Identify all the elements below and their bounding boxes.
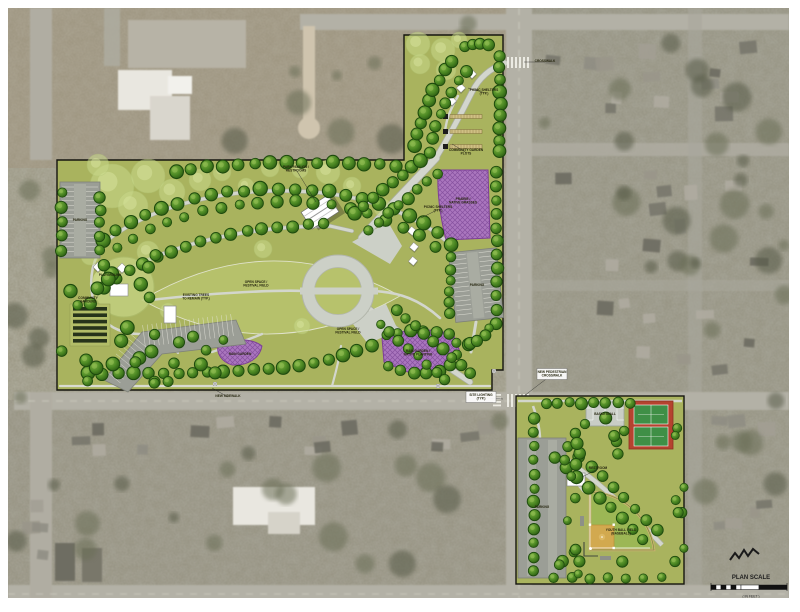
tree bbox=[529, 510, 540, 521]
tree bbox=[130, 357, 141, 368]
tree bbox=[127, 366, 140, 379]
tree bbox=[597, 471, 608, 482]
tree bbox=[149, 329, 159, 339]
tree bbox=[216, 160, 229, 173]
tree bbox=[582, 482, 595, 495]
aerial-tree bbox=[319, 522, 348, 551]
plan-label: RAIN GARDEN /NATIVE PLANTING bbox=[404, 349, 433, 357]
tree bbox=[445, 265, 456, 276]
aerial-tree bbox=[286, 90, 311, 115]
light-post-dot bbox=[437, 385, 438, 386]
tree bbox=[606, 502, 616, 512]
tree bbox=[491, 304, 502, 315]
scale-units: ( IN FEET ) bbox=[742, 595, 759, 599]
plan-label: BASKETBALL bbox=[594, 412, 616, 416]
tree bbox=[323, 354, 334, 365]
tree bbox=[563, 517, 571, 525]
tree bbox=[528, 413, 540, 425]
tree bbox=[387, 177, 398, 188]
tree bbox=[222, 186, 233, 197]
plan-label: PARKING bbox=[73, 218, 88, 222]
plan-label: PARK PAVILION /RESTROOMS bbox=[283, 165, 309, 173]
tree bbox=[446, 87, 457, 98]
house-roof bbox=[431, 442, 443, 452]
aerial-tree bbox=[615, 132, 634, 151]
tree bbox=[528, 523, 539, 534]
tree bbox=[427, 132, 439, 144]
house-roof bbox=[758, 422, 776, 436]
tree bbox=[95, 205, 106, 216]
aerial-tree bbox=[289, 66, 301, 78]
aerial-tree bbox=[275, 483, 296, 504]
tree bbox=[150, 250, 161, 261]
tree bbox=[493, 145, 506, 158]
tree bbox=[384, 327, 395, 338]
tree bbox=[528, 552, 539, 563]
tree bbox=[145, 224, 155, 234]
tree bbox=[128, 234, 138, 244]
tree bbox=[680, 544, 688, 552]
tree bbox=[408, 139, 422, 153]
tennis-courts bbox=[629, 401, 673, 449]
tree bbox=[364, 226, 373, 235]
tree bbox=[444, 329, 455, 340]
tree bbox=[613, 397, 624, 408]
tree bbox=[446, 252, 456, 262]
house-roof bbox=[756, 499, 773, 508]
tree bbox=[433, 169, 443, 179]
aerial-tree bbox=[6, 531, 27, 552]
house-roof bbox=[597, 300, 614, 315]
tree bbox=[106, 357, 120, 371]
aerial-tree bbox=[368, 56, 382, 70]
tree bbox=[403, 209, 417, 223]
tree bbox=[383, 208, 394, 219]
tree bbox=[491, 249, 502, 260]
aerial-tree bbox=[332, 70, 342, 80]
tree bbox=[376, 183, 389, 196]
tree bbox=[120, 321, 134, 335]
tree bbox=[64, 284, 77, 297]
tree bbox=[600, 398, 611, 409]
tree bbox=[609, 430, 620, 441]
east-street-2 bbox=[532, 280, 789, 291]
house-roof bbox=[643, 71, 661, 82]
aerial-tree bbox=[75, 511, 100, 536]
aerial-tree bbox=[759, 204, 774, 219]
aerial-tree bbox=[222, 128, 248, 154]
tree bbox=[560, 455, 570, 465]
tree bbox=[418, 106, 432, 120]
tree bbox=[613, 449, 624, 460]
house-roof bbox=[341, 420, 358, 436]
tree bbox=[187, 331, 198, 342]
aerial-tree bbox=[755, 247, 782, 274]
tree bbox=[253, 181, 267, 195]
tree bbox=[56, 230, 67, 241]
garden-shed bbox=[443, 129, 448, 134]
tree bbox=[145, 345, 158, 358]
tree bbox=[430, 121, 441, 132]
house-roof bbox=[92, 423, 104, 436]
tree bbox=[552, 398, 562, 408]
tree bbox=[395, 365, 406, 376]
tree bbox=[322, 184, 336, 198]
aerial-tree bbox=[734, 173, 748, 187]
building-roof bbox=[55, 543, 75, 581]
house-roof bbox=[656, 185, 672, 198]
house-roof bbox=[618, 298, 630, 309]
tree bbox=[491, 223, 502, 234]
aerial-tree bbox=[768, 392, 785, 409]
aerial-tree bbox=[690, 258, 701, 269]
tree bbox=[432, 227, 444, 239]
tree bbox=[402, 193, 414, 205]
plan-label: NEW SIDEWALK bbox=[215, 394, 241, 398]
house-roof bbox=[137, 444, 148, 454]
tree bbox=[570, 493, 580, 503]
tree bbox=[434, 75, 445, 86]
existing-canopy-highlight bbox=[435, 42, 446, 53]
tree bbox=[185, 164, 196, 175]
house-roof bbox=[684, 185, 698, 201]
scale-bar-cell bbox=[721, 585, 726, 590]
tree bbox=[235, 200, 244, 209]
aerial-tree bbox=[704, 322, 721, 339]
tree bbox=[144, 292, 155, 303]
tree bbox=[219, 336, 228, 345]
tree bbox=[493, 62, 504, 73]
tree bbox=[413, 229, 425, 241]
tree bbox=[169, 358, 180, 369]
aerial-tree bbox=[691, 75, 713, 97]
tree bbox=[444, 287, 454, 297]
existing-canopy-highlight bbox=[410, 36, 421, 47]
tree bbox=[621, 574, 630, 583]
tree bbox=[570, 459, 582, 471]
tree bbox=[326, 155, 339, 168]
aerial-tree bbox=[395, 454, 417, 476]
tree bbox=[671, 495, 680, 504]
plaza-cross-path bbox=[300, 288, 378, 295]
tree bbox=[195, 236, 206, 247]
tree bbox=[80, 354, 93, 367]
tree bbox=[336, 348, 350, 362]
aerial-tree bbox=[692, 479, 717, 504]
tree bbox=[252, 197, 264, 209]
aerial-tree bbox=[22, 344, 45, 367]
tree bbox=[440, 98, 451, 109]
tree bbox=[209, 367, 221, 379]
existing-canopy-highlight bbox=[137, 165, 152, 180]
aerial-tree bbox=[764, 472, 788, 496]
light-post-dot bbox=[214, 383, 215, 384]
aerial-tree bbox=[48, 479, 60, 491]
tree bbox=[327, 200, 336, 209]
tree bbox=[494, 51, 505, 62]
aerial-tree bbox=[241, 446, 255, 460]
house-roof bbox=[709, 68, 721, 77]
tree bbox=[293, 360, 305, 372]
tree bbox=[680, 483, 688, 491]
tree bbox=[367, 192, 378, 203]
tree bbox=[232, 159, 244, 171]
tree bbox=[303, 219, 313, 229]
tree bbox=[125, 265, 136, 276]
tree bbox=[94, 231, 104, 241]
aerial-tree bbox=[663, 207, 691, 235]
house-roof bbox=[72, 436, 91, 445]
crosswalk-bar bbox=[515, 57, 517, 68]
sub-park bbox=[516, 396, 684, 584]
tree bbox=[343, 157, 356, 170]
crosswalk-bar bbox=[507, 57, 509, 68]
tree bbox=[574, 556, 585, 567]
tree bbox=[201, 345, 211, 355]
tree bbox=[493, 122, 506, 135]
tree bbox=[312, 158, 323, 169]
tree bbox=[83, 376, 93, 386]
tree bbox=[98, 259, 110, 271]
tree bbox=[436, 109, 445, 118]
tree bbox=[588, 397, 598, 407]
existing-canopy-highlight bbox=[346, 180, 354, 188]
house-roof bbox=[711, 416, 728, 426]
tree bbox=[263, 156, 276, 169]
house-roof bbox=[711, 364, 728, 375]
scale-bar-cell bbox=[726, 585, 731, 590]
tree bbox=[608, 482, 619, 493]
tree bbox=[411, 321, 421, 331]
tree bbox=[446, 55, 458, 67]
house-roof bbox=[605, 103, 616, 113]
tree bbox=[446, 276, 455, 285]
tree bbox=[393, 335, 404, 346]
tree bbox=[616, 512, 628, 524]
aerial-tree bbox=[206, 535, 223, 552]
aerial-tree bbox=[710, 224, 739, 253]
tree bbox=[549, 573, 559, 583]
tree bbox=[239, 186, 250, 197]
tree bbox=[444, 308, 454, 318]
tree bbox=[638, 534, 648, 544]
tree bbox=[242, 226, 253, 237]
tree bbox=[428, 336, 439, 347]
house-roof bbox=[32, 522, 49, 532]
plan-label: PARKING bbox=[470, 283, 485, 287]
house-roof bbox=[595, 56, 614, 72]
tree bbox=[570, 544, 581, 555]
scale-bar-cell bbox=[731, 585, 736, 590]
tree bbox=[55, 201, 67, 213]
tree bbox=[225, 228, 237, 240]
tree bbox=[140, 209, 151, 220]
tree bbox=[491, 290, 501, 300]
plan-label: OPEN SPACE /FESTIVAL FIELD bbox=[243, 280, 269, 288]
plan-label: EXISTING TREESTO REMAIN (TYP.) bbox=[182, 293, 210, 301]
tree bbox=[211, 232, 222, 243]
house-roof bbox=[643, 313, 656, 323]
house-roof bbox=[725, 518, 742, 529]
tree bbox=[630, 504, 639, 513]
building-roof bbox=[168, 76, 192, 94]
tree bbox=[492, 196, 502, 206]
crosswalk-bar bbox=[511, 394, 513, 407]
tree bbox=[374, 218, 384, 228]
tree bbox=[617, 556, 628, 567]
house-roof bbox=[636, 346, 650, 358]
existing-canopy-highlight bbox=[193, 173, 203, 183]
aerial-tree bbox=[433, 485, 461, 513]
house-roof bbox=[314, 441, 331, 454]
tree bbox=[272, 222, 283, 233]
aerial-tree bbox=[645, 260, 658, 273]
site-plan-rendering: PARK PAVILION /RESTROOMSOPEN SPACE /FEST… bbox=[0, 0, 800, 612]
tree bbox=[461, 66, 473, 78]
tree bbox=[194, 358, 207, 371]
tree bbox=[180, 241, 191, 252]
house-roof bbox=[727, 414, 746, 429]
aerial-tree bbox=[388, 420, 407, 439]
tree bbox=[603, 573, 613, 583]
tree bbox=[418, 328, 430, 340]
tree bbox=[492, 235, 504, 247]
crosswalk-bar bbox=[523, 57, 525, 68]
tree bbox=[528, 427, 538, 437]
tree bbox=[465, 368, 476, 379]
tree bbox=[567, 472, 576, 481]
tree bbox=[134, 278, 147, 291]
garden-shed bbox=[443, 144, 448, 149]
aerial-tree bbox=[219, 461, 235, 477]
tree bbox=[358, 201, 368, 211]
tree bbox=[170, 165, 184, 179]
tree bbox=[430, 241, 441, 252]
plan-label: PARKING bbox=[535, 505, 550, 509]
tree bbox=[658, 573, 667, 582]
tree bbox=[198, 205, 208, 215]
aerial-tree bbox=[616, 186, 631, 201]
existing-canopy-highlight bbox=[297, 321, 304, 328]
tree bbox=[528, 566, 538, 576]
tree bbox=[124, 215, 137, 228]
tree bbox=[110, 225, 121, 236]
house-roof bbox=[37, 550, 49, 561]
playground-pavilion bbox=[110, 284, 128, 296]
tree bbox=[255, 223, 267, 235]
tree bbox=[575, 398, 587, 410]
plan-label: RAIN GARDEN bbox=[229, 352, 252, 356]
tree bbox=[530, 441, 540, 451]
house-roof bbox=[713, 521, 725, 530]
plan-label: RESTROOM bbox=[589, 466, 608, 470]
tree bbox=[619, 426, 629, 436]
tree bbox=[542, 399, 552, 409]
tree bbox=[56, 346, 67, 357]
tree bbox=[171, 198, 184, 211]
tree bbox=[491, 208, 502, 219]
tree bbox=[91, 282, 104, 295]
aerial-tree bbox=[355, 554, 374, 573]
tree bbox=[452, 338, 461, 347]
aerial-tree bbox=[539, 117, 551, 129]
aerial-tree bbox=[716, 435, 731, 450]
tree bbox=[162, 218, 171, 227]
aerial-tree bbox=[720, 189, 750, 219]
tree bbox=[201, 160, 214, 173]
aerial-tree bbox=[169, 512, 180, 523]
tree bbox=[549, 452, 560, 463]
tree bbox=[673, 507, 683, 517]
tree bbox=[437, 343, 449, 355]
west-street-bottom bbox=[30, 392, 52, 598]
tree bbox=[670, 556, 680, 566]
house-roof bbox=[30, 500, 43, 513]
house-roof bbox=[190, 425, 209, 438]
tree bbox=[287, 221, 299, 233]
scale-bar-cell bbox=[711, 585, 716, 590]
tree bbox=[652, 524, 664, 536]
tree bbox=[444, 297, 454, 307]
tree bbox=[95, 245, 105, 255]
tree bbox=[165, 246, 177, 258]
light-post-dot bbox=[493, 370, 494, 371]
tree bbox=[143, 261, 155, 273]
tree bbox=[490, 166, 502, 178]
tree bbox=[444, 238, 458, 252]
tree bbox=[422, 177, 432, 187]
tree bbox=[115, 334, 128, 347]
tree bbox=[289, 184, 300, 195]
existing-canopy-highlight bbox=[91, 158, 101, 168]
tree bbox=[306, 185, 317, 196]
tree bbox=[398, 222, 409, 233]
tree bbox=[216, 203, 227, 214]
house-roof bbox=[696, 310, 714, 319]
tree bbox=[491, 276, 502, 287]
north-street bbox=[300, 14, 789, 30]
tree bbox=[639, 574, 648, 583]
plan-label: PLAYGROUND bbox=[99, 273, 122, 277]
plan-scale-title: PLAN SCALE bbox=[732, 575, 770, 581]
tree bbox=[594, 492, 606, 504]
tree bbox=[554, 560, 564, 570]
scale-bar-cell bbox=[736, 585, 741, 590]
aerial-tree bbox=[738, 430, 763, 455]
tree bbox=[494, 109, 506, 121]
aerial-tree bbox=[114, 476, 129, 491]
house-roof bbox=[555, 173, 572, 185]
tree bbox=[529, 455, 538, 464]
community-gardens-west bbox=[70, 304, 110, 346]
tree bbox=[375, 159, 386, 170]
tree bbox=[173, 337, 184, 348]
tree bbox=[271, 196, 283, 208]
aerial-tree bbox=[389, 550, 416, 577]
aerial-tree bbox=[14, 391, 27, 404]
tree bbox=[417, 216, 431, 230]
tree bbox=[180, 213, 189, 222]
aerial-tree bbox=[705, 132, 729, 156]
building-roof bbox=[268, 512, 300, 534]
tree bbox=[483, 39, 495, 51]
tree bbox=[276, 361, 290, 375]
tree bbox=[454, 76, 463, 85]
tree bbox=[248, 364, 260, 376]
tree bbox=[55, 245, 66, 256]
tree bbox=[471, 335, 482, 346]
house-roof bbox=[642, 238, 661, 252]
